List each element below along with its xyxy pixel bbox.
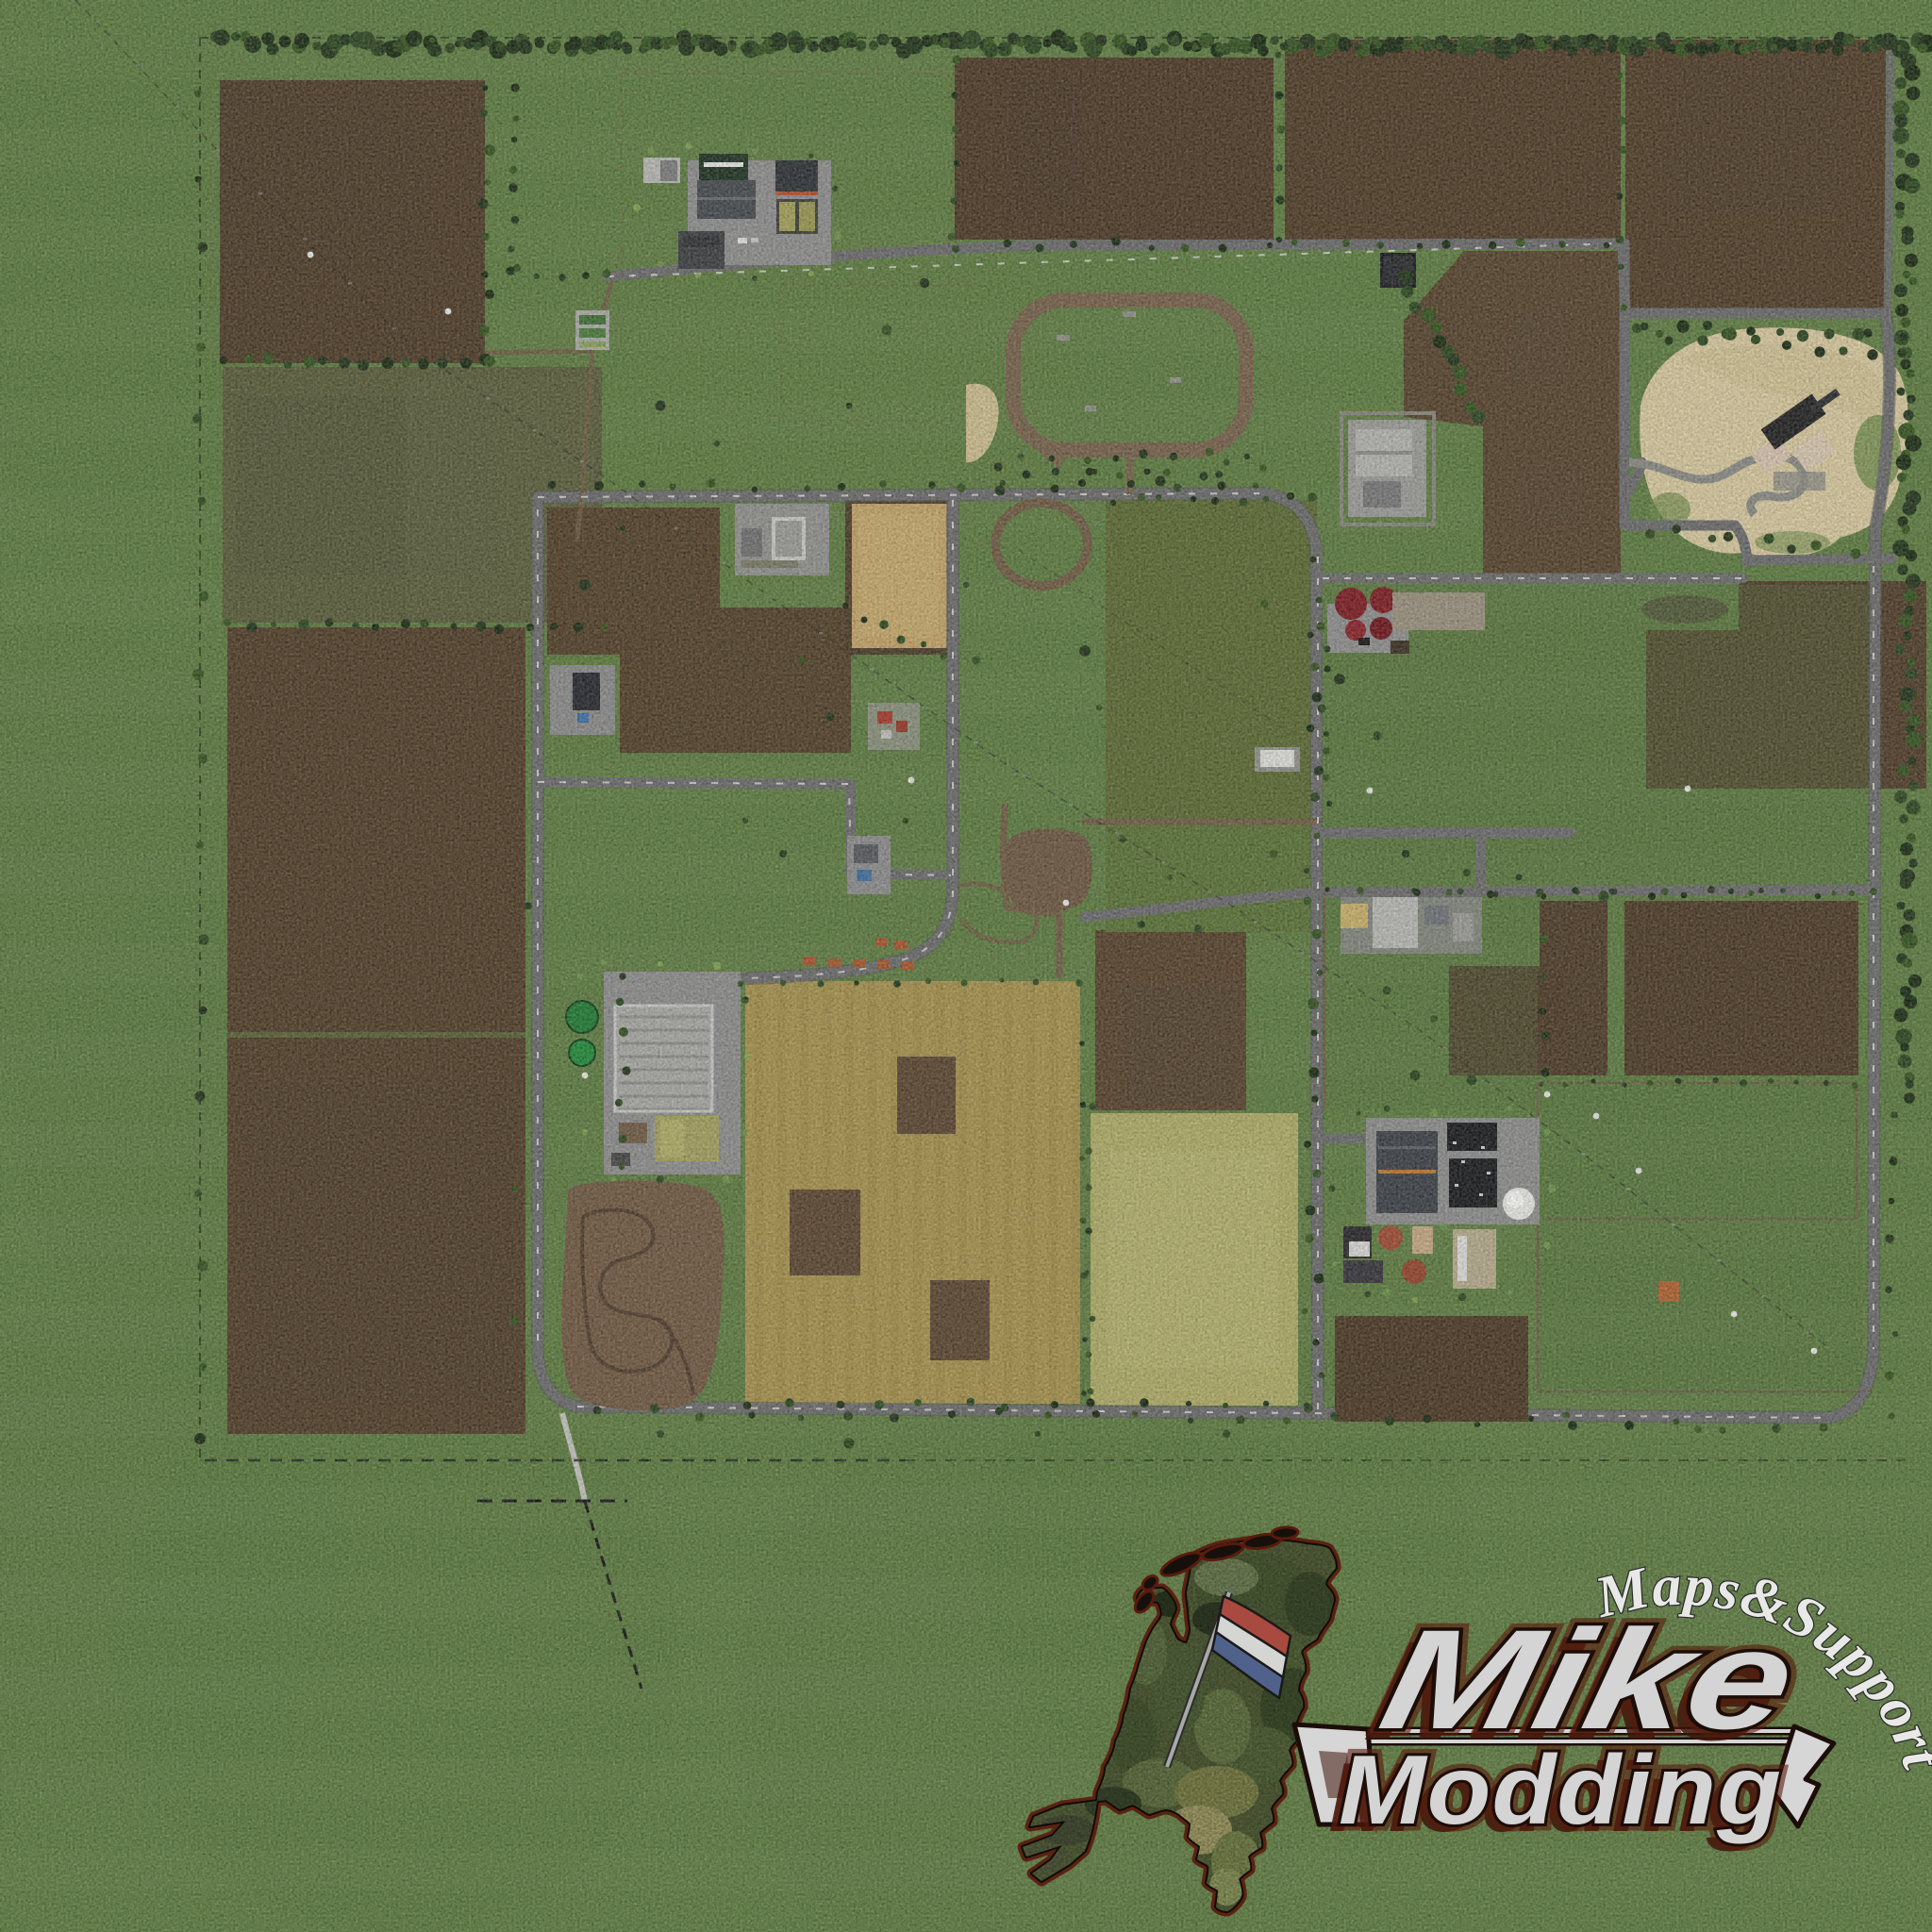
svg-text:Mike: Mike [1369,1602,1808,1759]
